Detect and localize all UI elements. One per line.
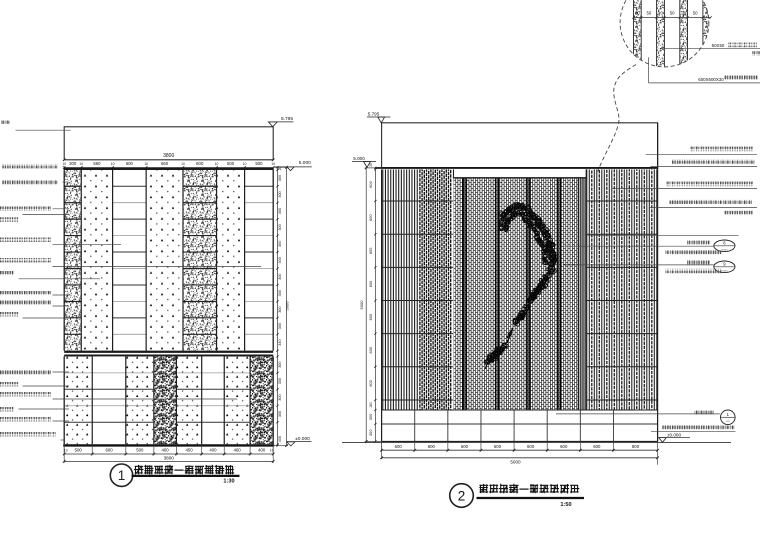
svg-text:560: 560 (93, 161, 101, 166)
svg-text:450: 450 (185, 448, 193, 453)
svg-text:300: 300 (368, 429, 373, 436)
svg-text:600: 600 (593, 444, 601, 449)
svg-text:xxxxx: xxxxx (721, 270, 728, 273)
svg-text:300: 300 (278, 224, 282, 230)
svg-text:±0.000: ±0.000 (667, 432, 681, 437)
svg-text:5.000: 5.000 (299, 160, 311, 166)
svg-text:300: 300 (278, 378, 282, 384)
svg-text:600: 600 (368, 180, 373, 187)
svg-text:300: 300 (278, 241, 282, 247)
svg-text:500: 500 (255, 161, 263, 166)
svg-text:600: 600 (126, 161, 134, 166)
svg-text:300: 300 (278, 306, 282, 312)
svg-text:10: 10 (215, 162, 219, 166)
svg-text:600: 600 (368, 379, 373, 386)
svg-text:300: 300 (278, 274, 282, 280)
svg-text:300: 300 (278, 361, 282, 367)
svg-text:660: 660 (161, 161, 169, 166)
svg-text:600: 600 (368, 313, 373, 320)
svg-text:10: 10 (243, 162, 247, 166)
svg-text:50: 50 (693, 11, 698, 16)
svg-text:300: 300 (69, 161, 77, 166)
svg-text:500: 500 (75, 448, 83, 453)
svg-text:2: 2 (458, 489, 466, 504)
svg-text:400: 400 (278, 436, 282, 442)
svg-text:5000: 5000 (510, 459, 521, 464)
svg-text:600: 600 (494, 444, 502, 449)
svg-text:800: 800 (632, 444, 640, 449)
svg-text:1:50: 1:50 (560, 502, 571, 508)
svg-text:300: 300 (278, 191, 282, 197)
svg-text:50: 50 (647, 11, 652, 16)
svg-text:600: 600 (368, 280, 373, 287)
svg-text:500: 500 (136, 448, 144, 453)
svg-text:300: 300 (278, 394, 282, 400)
svg-text:3800: 3800 (163, 153, 174, 159)
svg-text:300: 300 (278, 175, 282, 181)
svg-text:10: 10 (79, 162, 83, 166)
svg-text:10: 10 (181, 162, 185, 166)
svg-text:3800: 3800 (164, 456, 175, 461)
svg-text:600: 600 (461, 444, 469, 449)
svg-text:400: 400 (258, 448, 266, 453)
svg-text:460: 460 (234, 448, 242, 453)
svg-text:340: 340 (278, 339, 282, 345)
svg-text:10: 10 (270, 449, 274, 453)
svg-text:5000: 5000 (285, 301, 290, 311)
svg-text:300: 300 (278, 208, 282, 214)
svg-text:20: 20 (658, 11, 663, 16)
svg-text:50: 50 (670, 11, 675, 16)
svg-text:5.795: 5.795 (368, 112, 380, 117)
svg-text:600: 600 (395, 444, 403, 449)
svg-text:600: 600 (560, 444, 568, 449)
svg-text:400: 400 (162, 448, 170, 453)
svg-text:5.000: 5.000 (353, 156, 365, 161)
svg-text:300: 300 (278, 323, 282, 329)
svg-text:xxxxx: xxxxx (721, 249, 728, 252)
svg-text:180: 180 (369, 402, 373, 408)
svg-text:10: 10 (144, 162, 148, 166)
svg-text:10: 10 (271, 162, 275, 166)
svg-text:300: 300 (278, 257, 282, 263)
svg-text:600X600X30: 600X600X30 (698, 77, 724, 82)
svg-text:300: 300 (278, 411, 282, 417)
svg-text:300: 300 (368, 413, 373, 420)
svg-text:300: 300 (278, 290, 282, 296)
svg-text:600: 600 (368, 214, 373, 221)
svg-text:1:30: 1:30 (223, 479, 234, 485)
svg-text:500: 500 (227, 161, 235, 166)
svg-text:400: 400 (209, 448, 217, 453)
svg-text:600: 600 (368, 247, 373, 254)
svg-text:600: 600 (428, 444, 436, 449)
svg-text:50X50: 50X50 (712, 43, 725, 48)
svg-text:10: 10 (62, 162, 66, 166)
svg-text:5.795: 5.795 (281, 116, 293, 122)
svg-text:±0.000: ±0.000 (295, 436, 310, 442)
svg-text:20: 20 (635, 11, 640, 16)
svg-text:10: 10 (111, 162, 115, 166)
svg-text:10: 10 (64, 449, 68, 453)
svg-text:20: 20 (278, 167, 282, 171)
svg-text:600: 600 (527, 444, 535, 449)
svg-text:600: 600 (105, 448, 113, 453)
svg-text:20: 20 (681, 11, 686, 16)
svg-text:600: 600 (196, 161, 204, 166)
svg-text:5000: 5000 (359, 300, 364, 310)
svg-text:1: 1 (118, 468, 126, 483)
svg-text:600: 600 (368, 346, 373, 353)
